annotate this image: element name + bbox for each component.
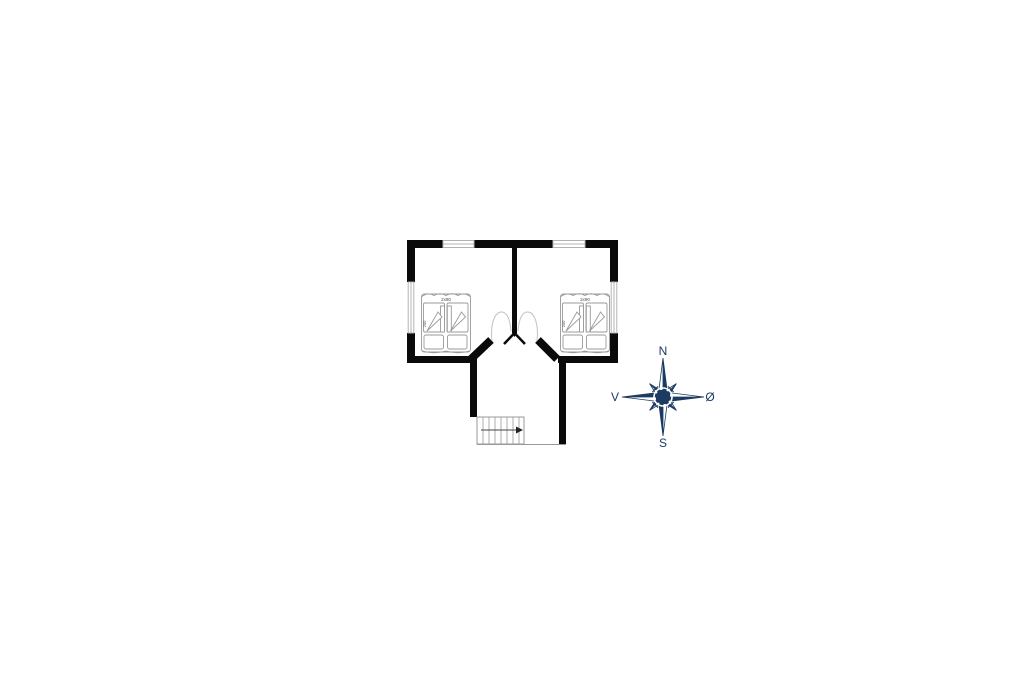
floor-plan-svg: 2x90 200 2x90 200 [0, 0, 1024, 682]
wall-diagonal-left [471, 340, 491, 359]
bed-size-label: 2x90 [441, 297, 451, 302]
wall-bottom-left-bedroom [407, 356, 477, 363]
stairs [477, 417, 566, 445]
wall-hallway-right [559, 356, 566, 445]
bed-length-label: 200 [561, 320, 566, 327]
bed-double-right: 2x90 200 [561, 294, 610, 353]
door-swing-arc-left [492, 312, 511, 341]
compass-north-label: N [659, 344, 668, 358]
wall-diagonal-right [538, 340, 557, 359]
wall-left-upper [407, 240, 415, 282]
compass-rose-icon: N S V Ø [611, 344, 715, 450]
bed-length-label: 200 [422, 320, 427, 327]
diagonal-walls [471, 340, 557, 359]
compass-center-dot [656, 390, 670, 404]
duvet-roll-left [580, 306, 584, 332]
wall-hallway-left [470, 356, 477, 417]
wall-center-divider [512, 248, 517, 333]
floor-plan-page: 2x90 200 2x90 200 [0, 0, 1024, 682]
bed-size-label: 2x90 [580, 297, 590, 302]
compass-east-label: Ø [705, 390, 714, 404]
wall-bottom-right-bedroom [558, 356, 618, 363]
door-leaf-right [515, 333, 526, 344]
duvet-roll-left [441, 306, 445, 332]
compass-west-label: V [611, 390, 619, 404]
duvet-roll-right [586, 306, 590, 332]
door-leaf-left [504, 333, 515, 344]
door-swing-arc-right [518, 312, 537, 341]
duvet-roll-right [447, 306, 451, 332]
bed-double-left: 2x90 200 [422, 294, 471, 353]
wall-top-center [474, 240, 553, 248]
wall-right-upper [610, 240, 618, 282]
compass-south-label: S [659, 436, 667, 450]
